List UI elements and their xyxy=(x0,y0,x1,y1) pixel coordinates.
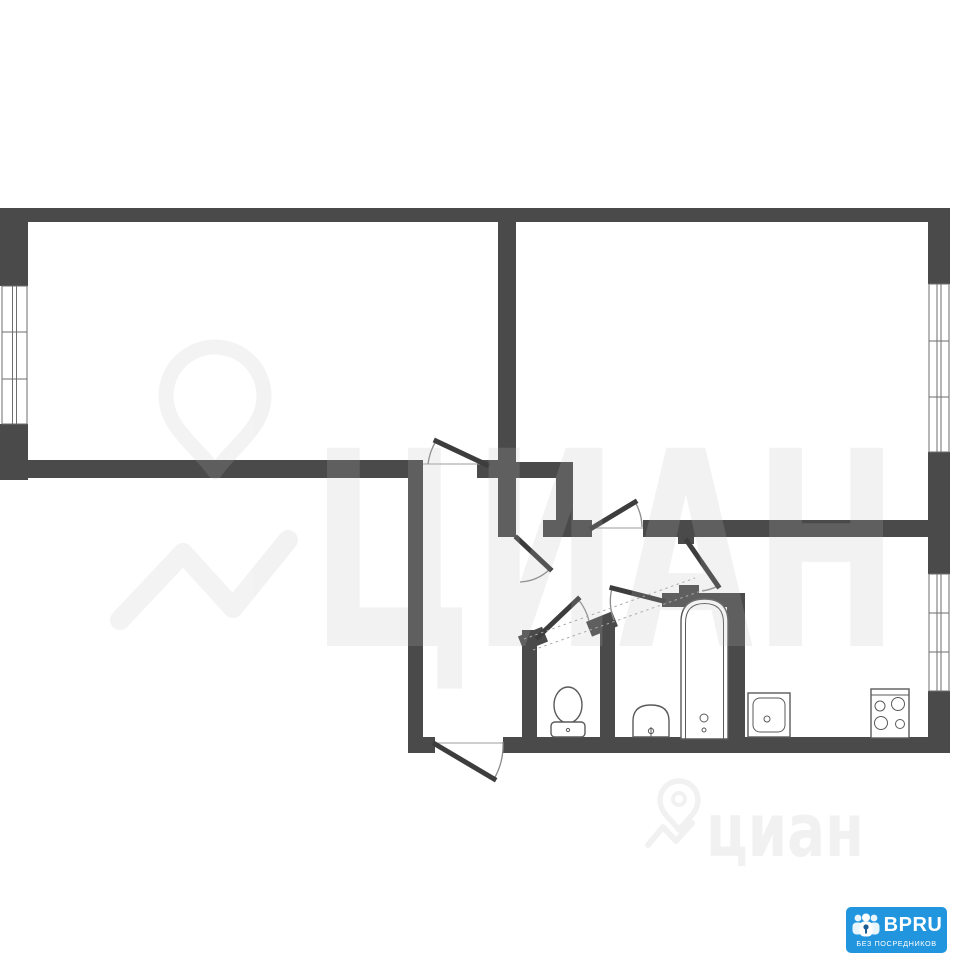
bpru-logo-badge: BPRU БЕЗ ПОСРЕДНИКОВ xyxy=(846,907,947,953)
wall-exterior-right-middle xyxy=(928,452,950,574)
wall-exterior-left-upper xyxy=(0,208,28,286)
cian-zigzag-small-icon xyxy=(648,823,692,845)
cian-zigzag-icon xyxy=(120,540,288,620)
wall-exterior-bottom-hall xyxy=(408,737,435,753)
cian-watermark-bottom: циан xyxy=(648,781,864,874)
floor-plan: ЦИАН циан xyxy=(0,0,960,960)
wall-exterior-right-upper xyxy=(928,208,950,284)
window-icon-kitchen xyxy=(929,574,949,691)
cian-watermark-center: ЦИАН xyxy=(120,347,899,711)
bpru-tagline-text: БЕЗ ПОСРЕДНИКОВ xyxy=(856,939,936,948)
bpru-brand-text: BPRU xyxy=(884,915,943,935)
wall-exterior-top xyxy=(0,208,950,222)
door-swing-icon-entry xyxy=(435,742,503,779)
cian-pin-hole-icon xyxy=(673,793,685,805)
window-icon-right-room xyxy=(929,284,949,452)
cian-watermark-bottom-text: циан xyxy=(706,788,864,874)
floorplan-screenshot: ЦИАН циан BPRU БЕЗ ПОСРЕДНИКОВ xyxy=(0,0,960,960)
bpru-people-icon xyxy=(851,913,881,937)
cian-pin-icon xyxy=(166,347,264,472)
window-icon-left-room xyxy=(2,286,27,424)
cian-watermark-text: ЦИАН xyxy=(311,395,899,711)
